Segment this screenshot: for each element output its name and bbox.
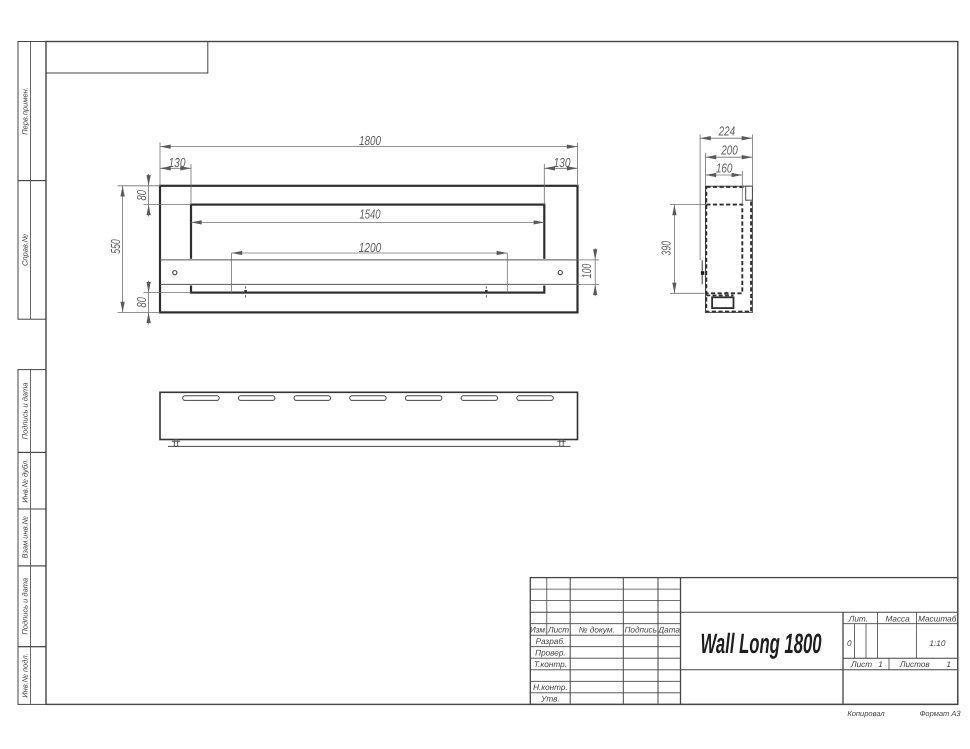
svg-text:390: 390 bbox=[658, 240, 673, 255]
svg-text:Подпись и дата: Подпись и дата bbox=[21, 578, 30, 635]
svg-text:Утв.: Утв. bbox=[540, 695, 560, 704]
svg-text:550: 550 bbox=[108, 239, 123, 254]
svg-text:Подпись и дата: Подпись и дата bbox=[21, 383, 30, 440]
svg-text:Изм.: Изм. bbox=[530, 626, 547, 635]
svg-text:Лист: Лист bbox=[850, 660, 872, 669]
svg-text:Листов: Листов bbox=[899, 660, 931, 669]
svg-text:Справ.№: Справ.№ bbox=[21, 234, 30, 266]
svg-text:Т.контр.: Т.контр. bbox=[534, 660, 567, 669]
svg-text:Лист: Лист bbox=[547, 626, 569, 635]
svg-text:Разраб.: Разраб. bbox=[536, 637, 566, 646]
svg-text:Подпись: Подпись bbox=[624, 626, 656, 635]
svg-text:Инв.№ подл.: Инв.№ подл. bbox=[21, 653, 30, 697]
svg-text:80: 80 bbox=[134, 297, 149, 308]
svg-text:Лит.: Лит. bbox=[848, 615, 868, 624]
svg-text:100: 100 bbox=[579, 263, 594, 278]
svg-text:1800: 1800 bbox=[359, 133, 382, 148]
svg-text:Провер.: Провер. bbox=[535, 649, 566, 658]
svg-text:Взам.инв.№: Взам.инв.№ bbox=[21, 516, 30, 558]
svg-text:130: 130 bbox=[554, 155, 572, 170]
svg-text:130: 130 bbox=[169, 155, 187, 170]
svg-text:Масштаб: Масштаб bbox=[918, 615, 957, 624]
svg-text:Дата: Дата bbox=[657, 626, 680, 635]
svg-text:200: 200 bbox=[720, 143, 738, 158]
svg-text:1:10: 1:10 bbox=[929, 639, 945, 648]
svg-text:№ докум.: № докум. bbox=[579, 626, 615, 635]
svg-text:1540: 1540 bbox=[360, 207, 382, 222]
svg-text:Копировал: Копировал bbox=[847, 709, 885, 718]
svg-text:Формат А3: Формат А3 bbox=[919, 709, 961, 718]
svg-text:80: 80 bbox=[134, 189, 149, 200]
svg-text:Масса: Масса bbox=[885, 615, 910, 624]
svg-text:160: 160 bbox=[716, 160, 733, 175]
svg-text:0: 0 bbox=[847, 639, 852, 648]
svg-text:1: 1 bbox=[946, 660, 951, 669]
svg-text:224: 224 bbox=[718, 124, 735, 139]
svg-text:1200: 1200 bbox=[359, 240, 382, 255]
svg-text:Н.контр.: Н.контр. bbox=[533, 683, 568, 692]
svg-text:Инв.№ дубл.: Инв.№ дубл. bbox=[21, 459, 30, 503]
svg-text:1: 1 bbox=[878, 660, 883, 669]
svg-text:Перв.примен.: Перв.примен. bbox=[21, 87, 30, 135]
svg-text:Wall Long 1800: Wall Long 1800 bbox=[701, 628, 822, 659]
